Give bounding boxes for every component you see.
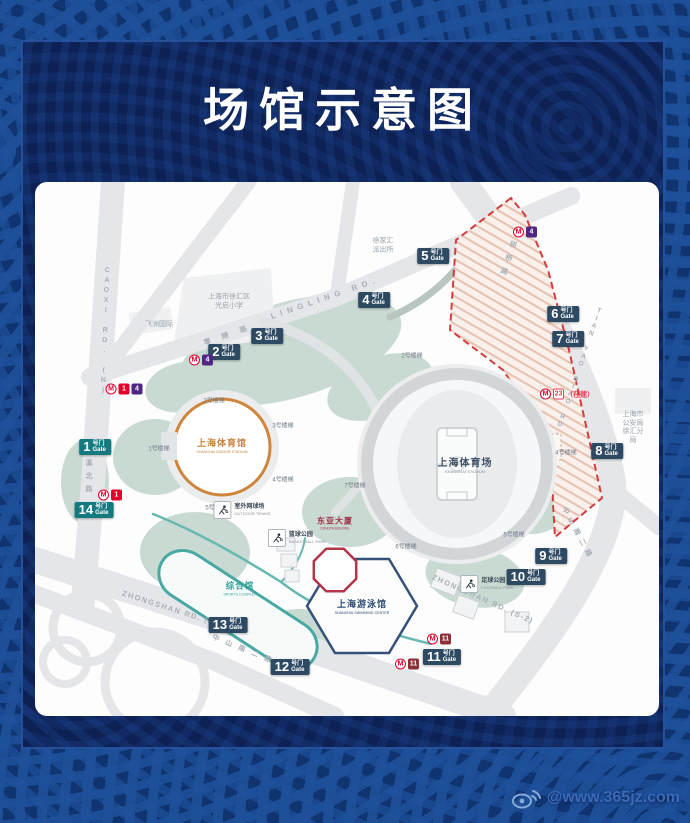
gate-badge-5: 5号门Gate [417, 248, 449, 264]
gate-suffix-en: Gate [560, 314, 573, 320]
place-label: 上海市徐汇区 光启小学 [208, 294, 250, 311]
metro-station: M11 [427, 634, 451, 645]
metro-line-23-badge: 23 [553, 389, 564, 400]
park-label: 篮球公园BASKETBALL PARK [289, 532, 326, 544]
metro-line-4-badge: 4 [202, 355, 213, 366]
gate-suffix: 号门Gate [371, 294, 384, 306]
stair-label: 1号楼梯 [148, 444, 169, 453]
gate-suffix: 号门Gate [291, 661, 304, 673]
gate-suffix: 号门Gate [221, 346, 234, 358]
park-label-cn: 室外网球场 [234, 504, 270, 511]
stair-label: 5号楼梯 [503, 530, 524, 539]
poster-panel: 场馆示意图 [21, 40, 665, 749]
gate-suffix-en: Gate [443, 657, 456, 663]
gate-badge-6: 6号门Gate [547, 306, 579, 322]
park-label-en: BASKETBALL PARK [289, 539, 326, 544]
gate-number: 12 [275, 661, 289, 673]
park-label-en: OUTDOOR TENNIS [234, 511, 270, 516]
gate-suffix: 号门Gate [95, 504, 108, 516]
gate-number: 5 [421, 250, 428, 262]
gate-suffix: 号门Gate [229, 619, 242, 631]
metro-construction-note: （在建） [566, 389, 594, 399]
gate-badge-4: 4号门Gate [358, 292, 390, 308]
stair-label: 2号楼梯 [203, 396, 224, 405]
stair-label: 4号楼梯 [555, 448, 576, 457]
gate-number: 2 [212, 346, 219, 358]
gate-suffix: 号门Gate [264, 330, 277, 342]
metro-line-11-badge: 11 [408, 659, 419, 670]
metro-logo-icon: M [513, 227, 524, 238]
stair-label: 2号楼梯 [401, 351, 422, 360]
park-outdoor-tennis: 室外网球场OUTDOOR TENNIS [213, 501, 270, 519]
metro-station: M11 [395, 659, 419, 670]
gate-suffix-en: Gate [92, 447, 105, 453]
metro-station: M4 [189, 355, 213, 366]
park-basketball-park: 篮球公园BASKETBALL PARK [268, 529, 326, 547]
metro-logo-icon: M [189, 355, 200, 366]
gate-badge-14: 14号门Gate [75, 502, 114, 518]
gate-badge-1: 1号门Gate [79, 439, 111, 455]
gate-suffix: 号门Gate [565, 333, 578, 345]
gate-suffix-en: Gate [604, 451, 617, 457]
gate-suffix-en: Gate [527, 577, 540, 583]
gate-suffix-en: Gate [371, 300, 384, 306]
gate-badge-12: 12号门Gate [271, 659, 310, 675]
venue-indoor-stadium: 上海体育馆 SHANGHAI INDOOR STADIUM [194, 436, 251, 454]
metro-line-1-badge: 1 [119, 384, 130, 395]
metro-line-1-badge: 1 [111, 490, 122, 501]
road-label: 中山南二路 [211, 632, 280, 667]
stair-label: 3号楼梯 [272, 421, 293, 430]
gate-badge-3: 3号门Gate [251, 328, 283, 344]
gate-number: 10 [511, 571, 525, 583]
metro-station: M4 [513, 227, 537, 238]
gate-suffix: 号门Gate [560, 308, 573, 320]
map-overlay: 上海体育馆 SHANGHAI INDOOR STADIUM 上海体育场 SHAN… [35, 182, 659, 716]
metro-station: M23（在建） [540, 389, 594, 400]
metro-logo-icon: M [395, 659, 406, 670]
road-label: CAOXI RD. (N) [99, 267, 111, 397]
gate-suffix: 号门Gate [443, 651, 456, 663]
gate-badge-13: 13号门Gate [209, 617, 248, 633]
gate-badge-11: 11号门Gate [423, 649, 461, 665]
gate-suffix: 号门Gate [604, 445, 617, 457]
gate-number: 8 [595, 445, 602, 457]
place-label: 上海市公安局 徐汇分局 [620, 411, 646, 445]
poster: 场馆示意图 [0, 0, 690, 823]
gate-suffix-en: Gate [565, 339, 578, 345]
tennis-player-icon [213, 501, 231, 519]
gate-number: 11 [427, 651, 441, 663]
gate-number: 3 [255, 330, 262, 342]
metro-logo-icon: M [427, 634, 438, 645]
venue-stadium: 上海体育场 SHANGHAI STADIUM [438, 454, 493, 474]
place-label: 徐家汇 派出所 [373, 238, 394, 255]
stair-label: 4号楼梯 [272, 475, 293, 484]
gate-suffix: 号门Gate [548, 550, 561, 562]
gate-suffix-en: Gate [548, 556, 561, 562]
watermark: @www.365jz.com [511, 787, 680, 809]
gate-number: 6 [551, 308, 558, 320]
park-label: 室外网球场OUTDOOR TENNIS [234, 504, 270, 516]
gate-suffix: 号门Gate [430, 250, 443, 262]
road-label: TIAN YAO QIAO RD. [553, 307, 604, 438]
metro-station: M1 [98, 490, 122, 501]
metro-line-4-badge: 4 [132, 384, 143, 395]
metro-line-4-badge: 4 [526, 227, 537, 238]
gate-suffix-en: Gate [221, 352, 234, 358]
venue-swimming-center: 上海游泳馆 SHANGHAI SWIMMING CENTER [332, 597, 393, 615]
stair-label: 6号楼梯 [395, 542, 416, 551]
gate-number: 7 [556, 333, 563, 345]
gate-badge-8: 8号门Gate [591, 443, 623, 459]
venue-map: 上海体育馆 SHANGHAI INDOOR STADIUM 上海体育场 SHAN… [35, 182, 659, 716]
gate-suffix: 号门Gate [92, 441, 105, 453]
page-title: 场馆示意图 [23, 42, 663, 140]
gate-suffix-en: Gate [229, 625, 242, 631]
metro-logo-icon: M [106, 384, 117, 395]
park-label-cn: 篮球公园 [289, 532, 326, 539]
gate-suffix-en: Gate [430, 256, 443, 262]
watermark-text: @www.365jz.com [547, 789, 680, 807]
metro-station: M14 [106, 384, 143, 395]
gate-suffix: 号门Gate [527, 571, 540, 583]
gate-number: 1 [83, 441, 90, 453]
weibo-icon [511, 787, 541, 809]
metro-line-11-badge: 11 [440, 634, 451, 645]
basketball-player-icon [268, 529, 286, 547]
gate-badge-9: 9号门Gate [535, 548, 567, 564]
metro-logo-icon: M [98, 490, 109, 501]
metro-logo-icon: M [540, 389, 551, 400]
gate-suffix-en: Gate [264, 336, 277, 342]
gate-badge-10: 10号门Gate [507, 569, 546, 585]
gate-number: 4 [362, 294, 369, 306]
gate-number: 9 [539, 550, 546, 562]
venue-sports-complex: 综合馆 SPORTS COMPLEX [221, 580, 258, 597]
gate-number: 14 [79, 504, 93, 516]
football-player-icon [460, 575, 478, 593]
place-label: 飞洲国际 [145, 321, 173, 330]
gate-suffix-en: Gate [291, 667, 304, 673]
gate-number: 13 [213, 619, 227, 631]
park-label-en: FOOTBALL PARK [481, 585, 513, 590]
stair-label: 7号楼梯 [344, 481, 365, 490]
gate-suffix-en: Gate [95, 510, 108, 516]
gate-badge-7: 7号门Gate [552, 331, 584, 347]
